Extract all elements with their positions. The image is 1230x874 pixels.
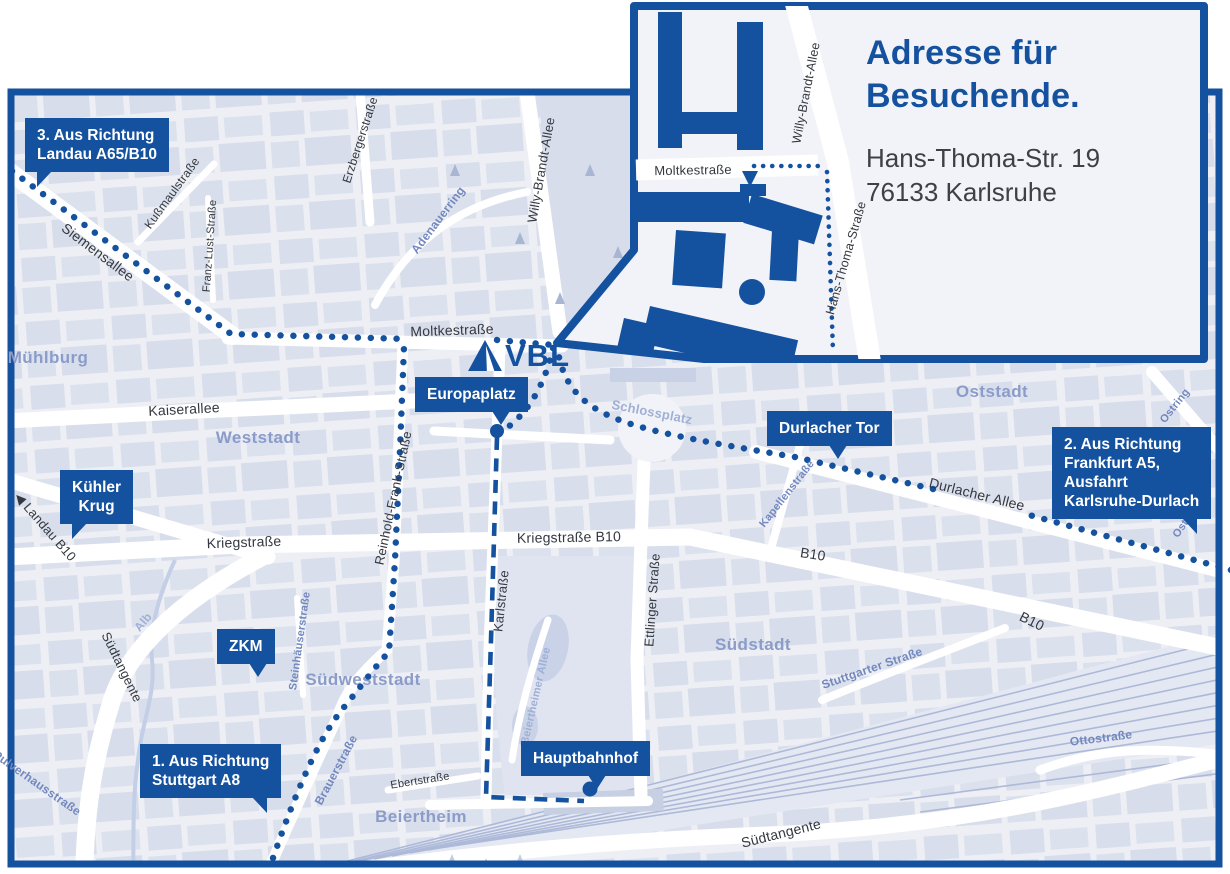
inset-title: Adresse für Besuchende. (866, 32, 1196, 118)
vbl-directions-map: MühlburgWeststadtSüdweststadtSüdstadtOst… (0, 0, 1230, 874)
inset-address-line1: Hans-Thoma-Str. 19 (866, 141, 1196, 175)
inset-address: Hans-Thoma-Str. 19 76133 Karlsruhe (866, 141, 1196, 209)
inset-callout (0, 0, 1230, 874)
inset-title-line2: Besuchende. (866, 75, 1196, 118)
inset-address-line2: 76133 Karlsruhe (866, 175, 1196, 209)
inset-title-line1: Adresse für (866, 32, 1196, 75)
